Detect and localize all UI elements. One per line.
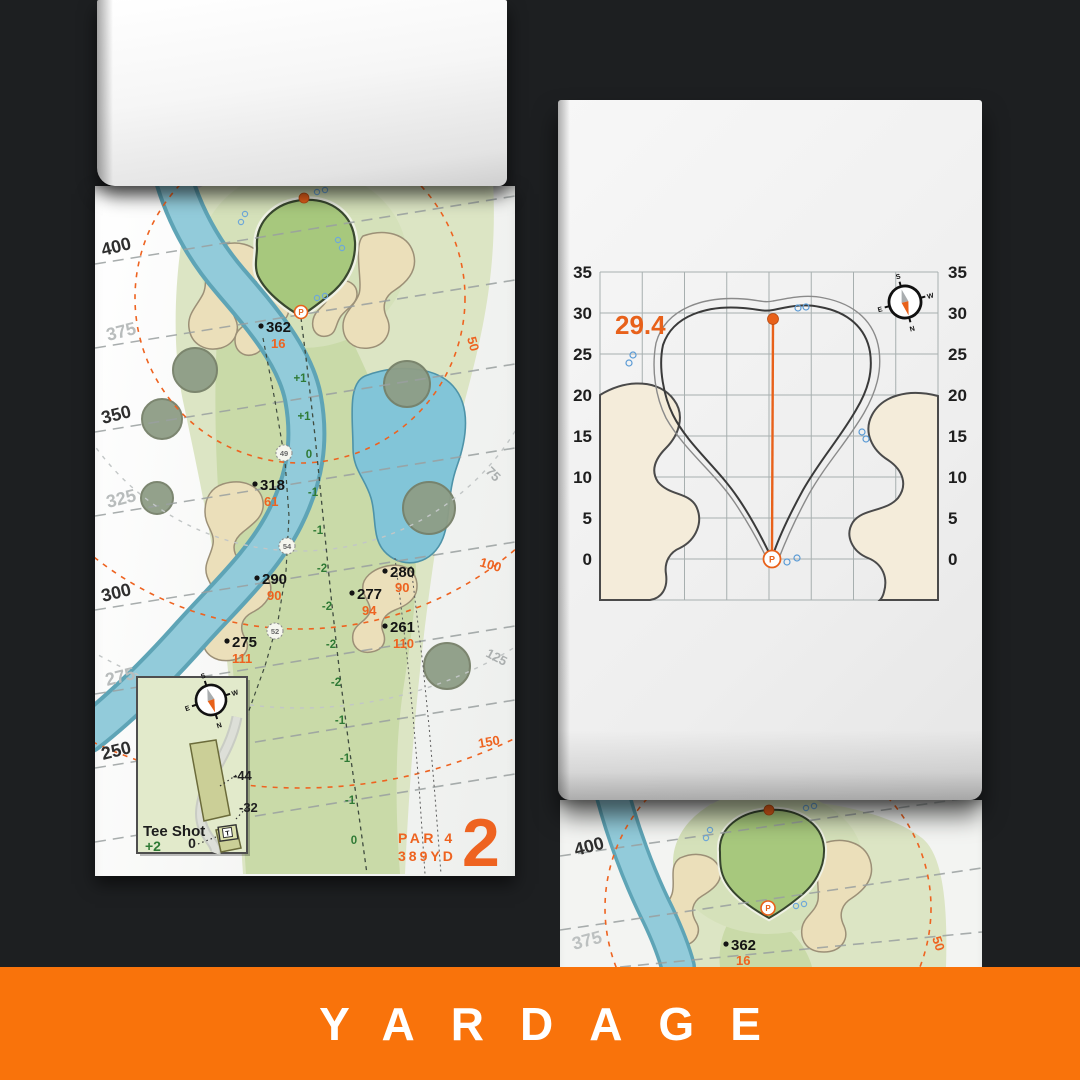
hole-header: PAR 4 389YD 2: [398, 805, 500, 876]
back-of-green-dot: [768, 314, 779, 325]
svg-text:25: 25: [573, 345, 592, 364]
svg-text:-2: -2: [322, 601, 332, 613]
svg-text:+1: +1: [297, 411, 311, 423]
range-ring-labels: 50 75 100 125 150: [464, 335, 510, 751]
tee-offset-label: -32: [239, 800, 258, 815]
svg-text:0: 0: [306, 449, 312, 461]
svg-text:280: 280: [390, 564, 415, 581]
svg-text:350: 350: [99, 401, 133, 428]
pin-icon: P: [295, 306, 308, 319]
waypoint-label: 52: [271, 627, 279, 636]
svg-text:-2: -2: [326, 639, 336, 651]
tee-marker-icon: T: [218, 825, 238, 841]
back-of-green-dot: [764, 805, 774, 815]
yardage-labels: 400 375: [570, 833, 606, 954]
svg-text:S: S: [895, 273, 902, 281]
hole-number: 2: [462, 805, 500, 876]
svg-text:300: 300: [99, 579, 133, 606]
svg-text:5: 5: [948, 509, 957, 528]
pin-icon: P: [761, 901, 775, 915]
waypoint-label: 54: [283, 542, 292, 551]
grid-axis-right: 35 30 25 20 15 5 10 0: [948, 263, 967, 569]
svg-text:0: 0: [351, 835, 357, 847]
pin-icon: P: [769, 555, 775, 565]
svg-text:-2: -2: [331, 677, 341, 689]
svg-text:94: 94: [362, 603, 377, 618]
flipped-blank-page: [97, 0, 507, 186]
svg-text:400: 400: [99, 233, 133, 260]
svg-text:15: 15: [573, 427, 592, 446]
green-detail-graphic: P 35 30 25 20 15 10 5 0 35 3: [558, 100, 982, 800]
svg-text:125: 125: [484, 645, 510, 668]
tee-elevation: +2: [145, 838, 161, 854]
svg-text:290: 290: [262, 571, 287, 588]
svg-text:362: 362: [266, 319, 291, 336]
svg-text:375: 375: [104, 318, 138, 345]
waypoint-label: 49: [280, 449, 288, 458]
svg-text:0: 0: [948, 550, 957, 569]
yardage-book-scene: 49 54 52 +1 +1 0 -1 -1 -2 -2 -2 -2 -1 -1…: [0, 0, 1080, 1080]
svg-text:362: 362: [731, 937, 756, 954]
svg-text:275: 275: [232, 634, 257, 651]
svg-text:325: 325: [104, 485, 138, 512]
svg-text:P: P: [298, 308, 304, 317]
svg-text:-1: -1: [340, 753, 351, 765]
svg-text:W: W: [926, 292, 935, 301]
par-label: PAR 4: [398, 830, 456, 846]
svg-text:10: 10: [948, 468, 967, 487]
svg-text:-1: -1: [313, 525, 324, 537]
tee-offset-label: -44: [233, 768, 253, 783]
svg-text:318: 318: [260, 477, 285, 494]
tee-shot-inset: -44 -32 S W N E Tee Shot +2: [137, 665, 258, 856]
svg-text:15: 15: [948, 427, 967, 446]
svg-text:E: E: [877, 306, 884, 314]
next-hole-page-fragment: P 400 375 362 16 50: [560, 800, 982, 967]
svg-text:20: 20: [573, 386, 592, 405]
svg-text:261: 261: [390, 619, 415, 636]
svg-text:-1: -1: [335, 715, 346, 727]
svg-text:25: 25: [948, 345, 967, 364]
svg-text:5: 5: [583, 509, 592, 528]
next-hole-graphic: P 400 375 362 16 50: [560, 800, 982, 967]
river: [612, 800, 678, 967]
svg-text:90: 90: [267, 588, 281, 603]
svg-text:-1: -1: [308, 487, 319, 499]
svg-text:35: 35: [948, 263, 967, 282]
svg-text:N: N: [909, 325, 916, 333]
footer-title: YARDAGE: [319, 997, 797, 1051]
svg-text:20: 20: [948, 386, 967, 405]
green-detail-page: P 35 30 25 20 15 10 5 0 35 3: [558, 100, 982, 800]
svg-text:61: 61: [264, 494, 278, 509]
svg-text:90: 90: [395, 580, 409, 595]
svg-text:+1: +1: [293, 373, 307, 385]
hole-map-graphic: 49 54 52 +1 +1 0 -1 -1 -2 -2 -2 -2 -1 -1…: [95, 186, 515, 876]
svg-text:P: P: [765, 904, 771, 913]
svg-text:150: 150: [477, 732, 501, 751]
tee-offset-label: 0: [188, 835, 196, 851]
pin-depth-line: P: [764, 314, 781, 568]
svg-text:400: 400: [572, 833, 606, 860]
compass-icon: S W N E: [870, 266, 942, 340]
svg-text:-1: -1: [345, 795, 356, 807]
svg-text:16: 16: [736, 953, 750, 967]
svg-text:0: 0: [583, 550, 592, 569]
svg-text:277: 277: [357, 586, 382, 603]
footer-band: YARDAGE: [0, 967, 1080, 1080]
svg-text:10: 10: [573, 468, 592, 487]
svg-text:30: 30: [573, 304, 592, 323]
distance-label: 389YD: [398, 848, 456, 864]
svg-text:110: 110: [393, 636, 414, 651]
svg-text:30: 30: [948, 304, 967, 323]
svg-text:-2: -2: [317, 563, 327, 575]
back-of-green-dot: [299, 193, 309, 203]
svg-text:35: 35: [573, 263, 592, 282]
svg-text:375: 375: [570, 927, 604, 954]
svg-text:100: 100: [478, 554, 503, 574]
svg-text:75: 75: [483, 464, 504, 485]
svg-text:16: 16: [271, 336, 285, 351]
hole-map-page: 49 54 52 +1 +1 0 -1 -1 -2 -2 -2 -2 -1 -1…: [95, 186, 515, 876]
svg-text:111: 111: [232, 651, 252, 666]
grid-axis-left: 35 30 25 20 15 10 5 0: [573, 263, 592, 569]
pin-depth-value: 29.4: [615, 310, 666, 340]
